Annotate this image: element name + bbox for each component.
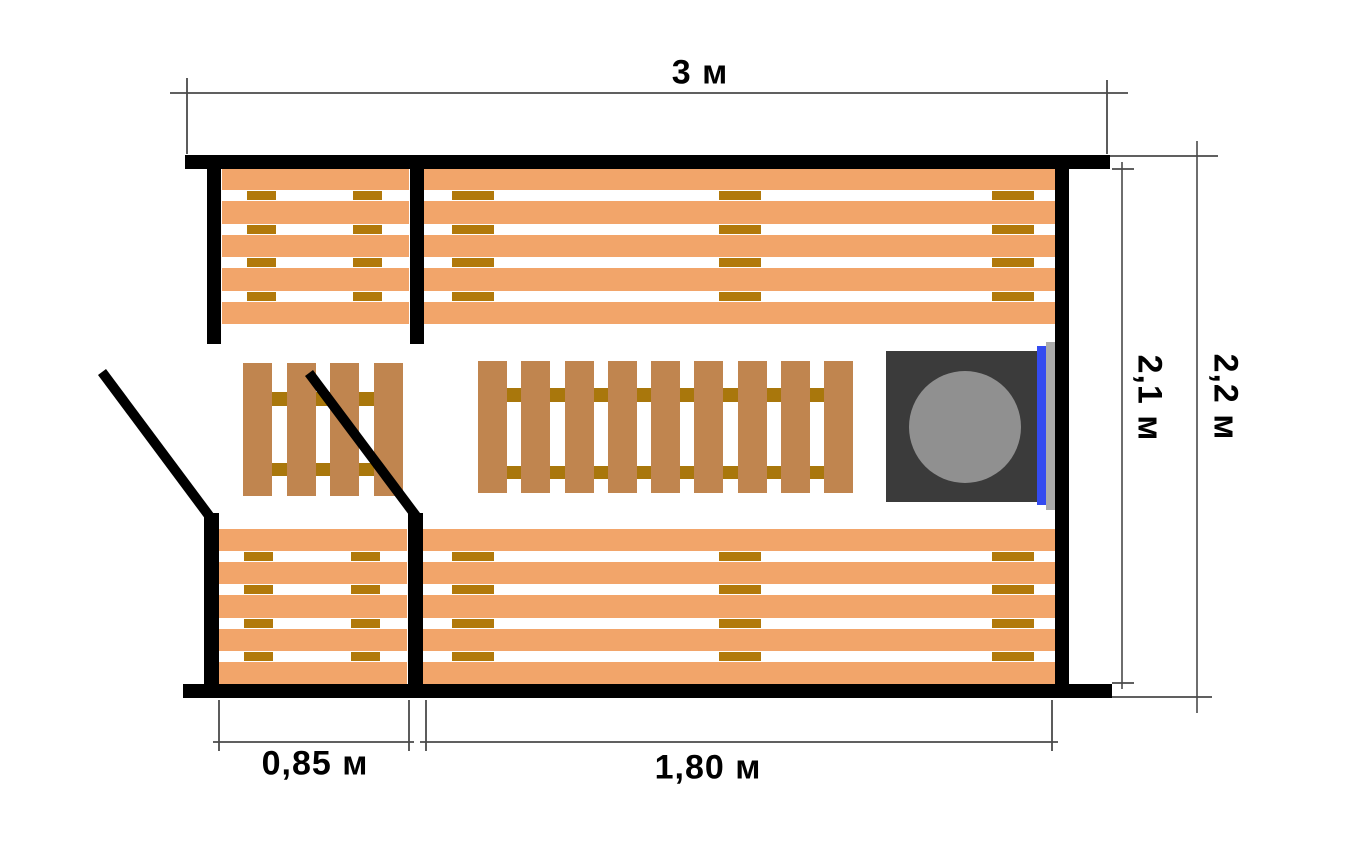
bench-tie-dash <box>247 191 276 200</box>
stove-trim-strip <box>1037 346 1046 505</box>
bench-tie-dash <box>353 191 382 200</box>
entrance-door-leaf <box>102 372 210 517</box>
bench-tie-dash <box>353 225 382 234</box>
bench-plank <box>423 529 1055 551</box>
bench-bottom-right <box>423 529 1055 684</box>
bench-tie-dash <box>719 652 761 661</box>
grate-plank <box>565 361 594 493</box>
grate-plank <box>651 361 680 493</box>
partition-upper <box>410 155 424 344</box>
wall-bottom <box>183 684 1112 698</box>
bench-tie-dash <box>719 552 761 561</box>
dim-label-outer-height: 2,2 м <box>1206 354 1245 441</box>
bench-tie-dash <box>244 585 273 594</box>
bench-tie-dash <box>452 585 494 594</box>
bench-tie-dash <box>992 225 1034 234</box>
grate-plank <box>824 361 853 493</box>
bench-tie-dash <box>247 225 276 234</box>
bench-plank <box>219 595 407 617</box>
grate-plank <box>287 363 316 496</box>
bench-tie-dash <box>247 258 276 267</box>
bench-plank <box>222 201 409 223</box>
dim-label-overall-width: 3 м <box>672 54 729 93</box>
floor-grate-main <box>478 361 853 493</box>
bench-plank <box>423 562 1055 584</box>
bench-plank <box>222 235 409 257</box>
bench-tie-dash <box>719 619 761 628</box>
grate-plank <box>330 363 359 496</box>
bench-tie-dash <box>244 619 273 628</box>
heat-shield-strip <box>1046 342 1055 510</box>
wall-top <box>185 155 1110 169</box>
bench-tie-dash <box>992 552 1034 561</box>
grate-plank <box>738 361 767 493</box>
bench-tie-dash <box>992 585 1034 594</box>
bench-tie-dash <box>452 292 494 301</box>
bench-tie-dash <box>992 619 1034 628</box>
bench-tie-dash <box>452 619 494 628</box>
bench-plank <box>219 629 407 651</box>
wall-left-lower <box>204 513 219 698</box>
grate-plank <box>694 361 723 493</box>
bench-tie-dash <box>351 585 380 594</box>
bench-top-left <box>222 168 409 324</box>
bench-plank <box>424 235 1055 257</box>
bench-plank <box>424 268 1055 290</box>
stove-lid-circle <box>909 371 1021 483</box>
partition-lower <box>408 513 423 684</box>
bench-bottom-left <box>219 529 407 684</box>
bench-tie-dash <box>452 552 494 561</box>
grate-plank <box>243 363 272 496</box>
dim-label-vestibule-width: 0,85 м <box>262 745 369 784</box>
bench-tie-dash <box>992 258 1034 267</box>
bench-plank <box>222 168 409 190</box>
bench-top-right <box>424 168 1055 324</box>
grate-plank <box>781 361 810 493</box>
dim-label-steam-room-width: 1,80 м <box>655 749 762 788</box>
bench-tie-dash <box>452 652 494 661</box>
bench-tie-dash <box>244 552 273 561</box>
bench-tie-dash <box>351 552 380 561</box>
grate-plank <box>608 361 637 493</box>
grate-plank <box>478 361 507 493</box>
bench-tie-dash <box>719 258 761 267</box>
bench-plank <box>222 268 409 290</box>
bench-tie-dash <box>719 225 761 234</box>
grate-plank <box>374 363 403 496</box>
bench-plank <box>219 562 407 584</box>
bench-tie-dash <box>353 258 382 267</box>
grate-plank <box>521 361 550 493</box>
dim-label-inner-height: 2,1 м <box>1130 355 1169 442</box>
bench-tie-dash <box>351 652 380 661</box>
bench-plank <box>219 529 407 551</box>
bench-tie-dash <box>244 652 273 661</box>
bench-tie-dash <box>719 191 761 200</box>
bench-tie-dash <box>992 292 1034 301</box>
wall-left-upper <box>207 155 221 344</box>
bench-plank <box>423 595 1055 617</box>
bench-plank <box>424 302 1055 324</box>
bench-tie-dash <box>452 225 494 234</box>
bench-tie-dash <box>247 292 276 301</box>
bench-plank <box>424 201 1055 223</box>
bench-tie-dash <box>351 619 380 628</box>
bench-plank <box>424 168 1055 190</box>
wall-right <box>1055 155 1069 698</box>
bench-tie-dash <box>353 292 382 301</box>
floor-grate-left <box>243 363 403 496</box>
bench-tie-dash <box>992 652 1034 661</box>
bench-plank <box>219 662 407 684</box>
bench-plank <box>423 629 1055 651</box>
bench-tie-dash <box>719 292 761 301</box>
bench-tie-dash <box>452 191 494 200</box>
bench-tie-dash <box>719 585 761 594</box>
bench-tie-dash <box>452 258 494 267</box>
sauna-floor-plan: 3 м 2,1 м 2,2 м 0,85 м 1,80 м <box>0 0 1346 850</box>
bench-plank <box>423 662 1055 684</box>
bench-plank <box>222 302 409 324</box>
bench-tie-dash <box>992 191 1034 200</box>
